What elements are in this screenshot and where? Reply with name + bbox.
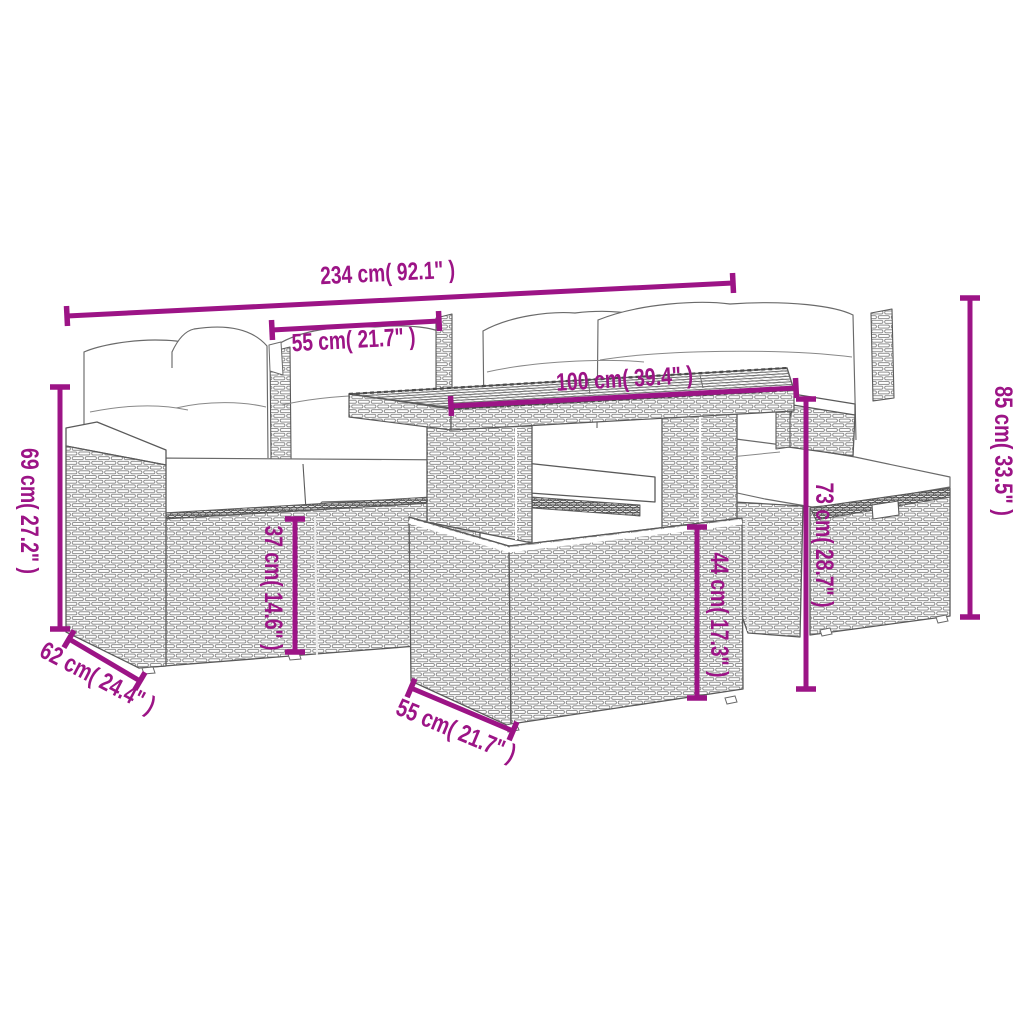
svg-text:37 cm( 14.6" ): 37 cm( 14.6" ) bbox=[259, 526, 287, 651]
svg-text:73 cm( 28.7" ): 73 cm( 28.7" ) bbox=[810, 483, 838, 608]
svg-text:44 cm( 17.3" ): 44 cm( 17.3" ) bbox=[705, 553, 733, 678]
svg-text:69 cm( 27.2" ): 69 cm( 27.2" ) bbox=[15, 448, 43, 574]
svg-text:85 cm( 33.5" ): 85 cm( 33.5" ) bbox=[989, 386, 1017, 516]
